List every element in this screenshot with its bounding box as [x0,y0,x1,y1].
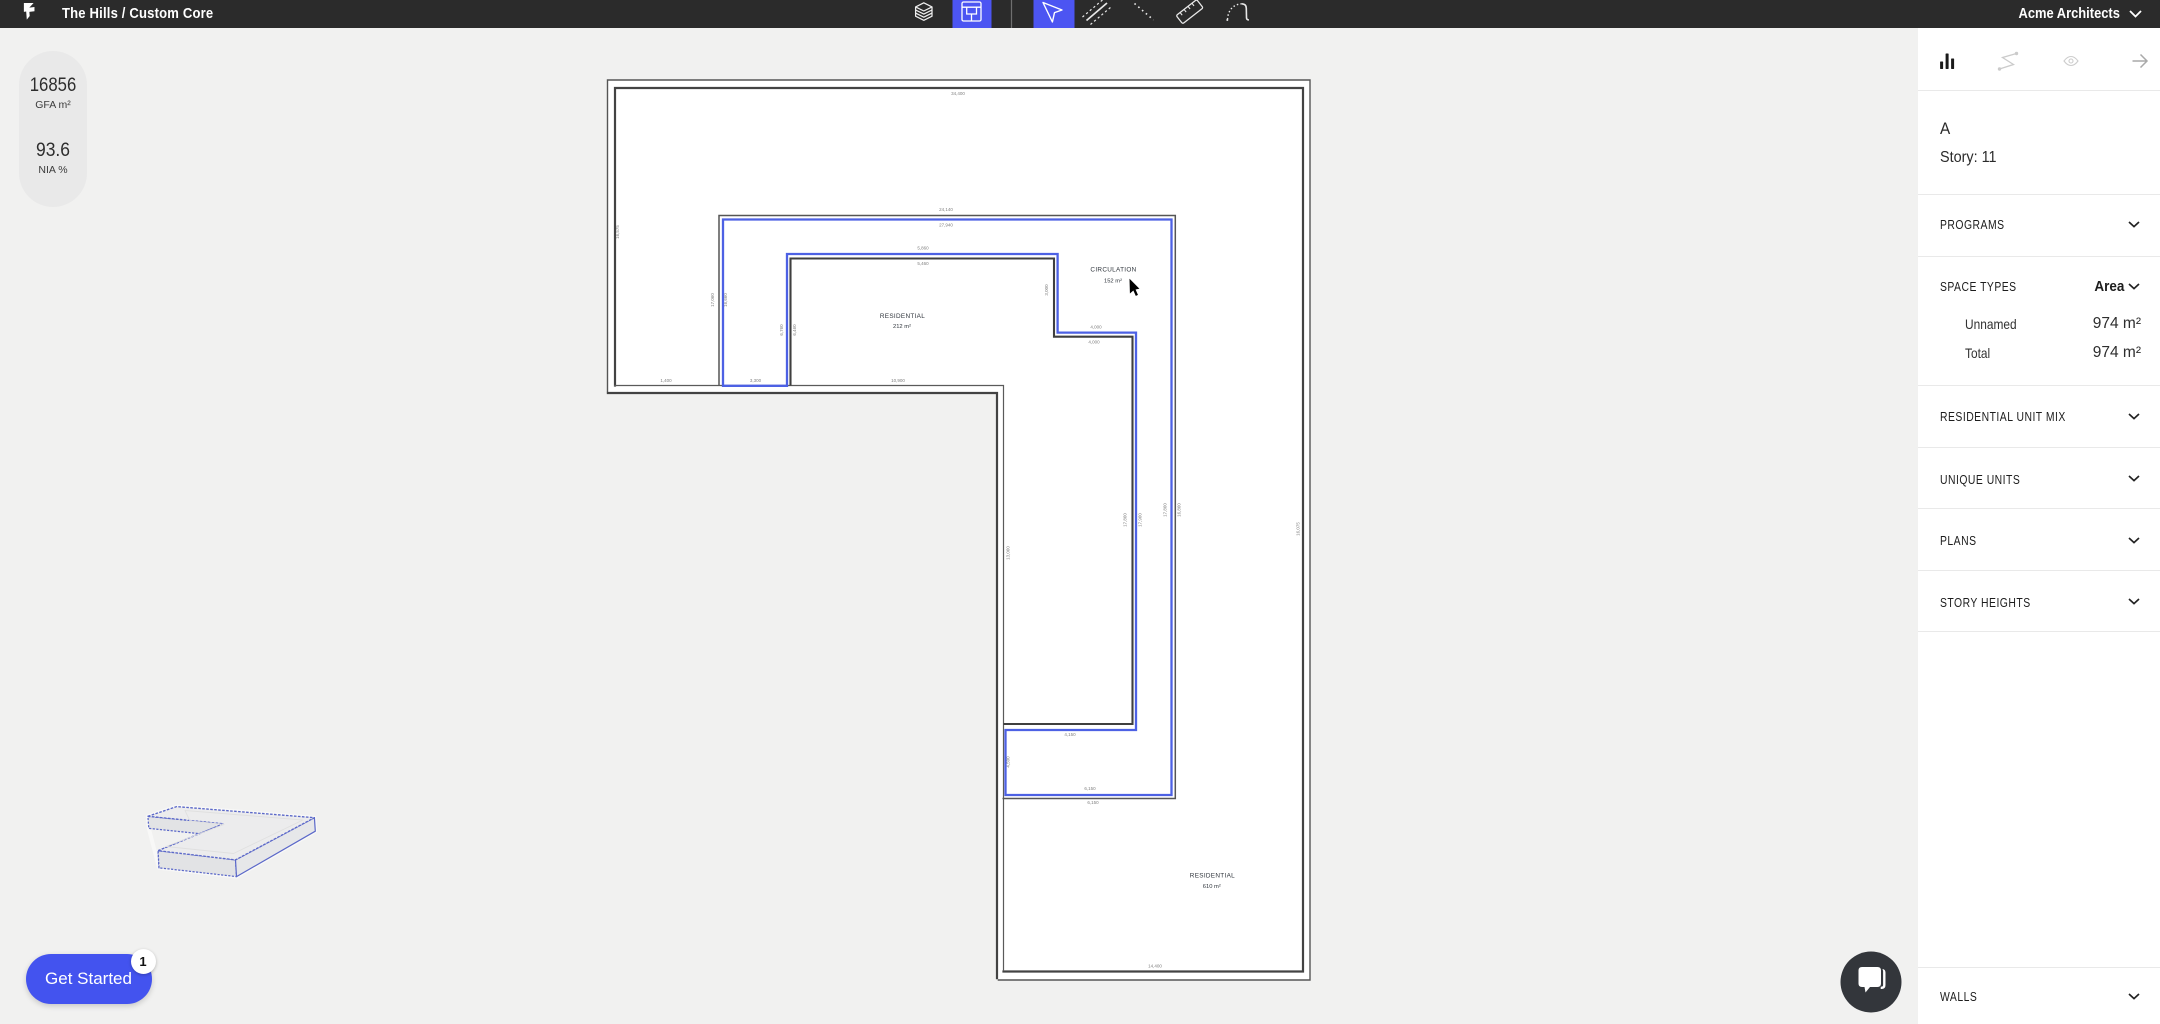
svg-text:4,000: 4,000 [1090,325,1102,330]
svg-text:152 m²: 152 m² [1104,279,1122,285]
svg-text:3,300: 3,300 [750,378,762,383]
svg-text:24,140: 24,140 [939,207,953,212]
svg-text:5,460: 5,460 [917,261,929,266]
svg-text:4,150: 4,150 [1064,732,1076,737]
svg-text:6,460: 6,460 [792,324,797,336]
svg-text:17,960: 17,960 [1138,513,1143,527]
svg-text:14,400: 14,400 [1148,964,1162,969]
svg-text:4,500: 4,500 [1006,756,1011,768]
svg-text:17,860: 17,860 [1123,513,1128,527]
svg-text:10,900: 10,900 [891,378,905,383]
svg-text:16,075: 16,075 [1296,522,1301,536]
svg-text:34,400: 34,400 [951,91,965,96]
svg-text:17,060: 17,060 [710,293,715,307]
svg-text:610 m²: 610 m² [1203,884,1221,890]
svg-text:RESIDENTIAL: RESIDENTIAL [880,313,925,320]
svg-text:CIRCULATION: CIRCULATION [1090,267,1136,274]
svg-text:4,000: 4,000 [1088,340,1100,345]
svg-text:17,860: 17,860 [1163,503,1168,517]
svg-text:27,940: 27,940 [939,223,953,228]
svg-text:6,150: 6,150 [1087,800,1099,805]
svg-text:16,575: 16,575 [615,225,620,239]
svg-text:13,060: 13,060 [1006,546,1011,560]
svg-text:6,150: 6,150 [1084,786,1096,791]
svg-text:1,400: 1,400 [660,378,672,383]
svg-text:5,860: 5,860 [917,246,929,251]
svg-text:6,760: 6,760 [779,324,784,336]
svg-text:RESIDENTIAL: RESIDENTIAL [1190,873,1235,880]
svg-text:3,000: 3,000 [1044,284,1049,296]
svg-text:212 m²: 212 m² [893,324,911,330]
svg-text:16,860: 16,860 [1177,503,1182,517]
svg-text:16,660: 16,660 [723,293,728,307]
